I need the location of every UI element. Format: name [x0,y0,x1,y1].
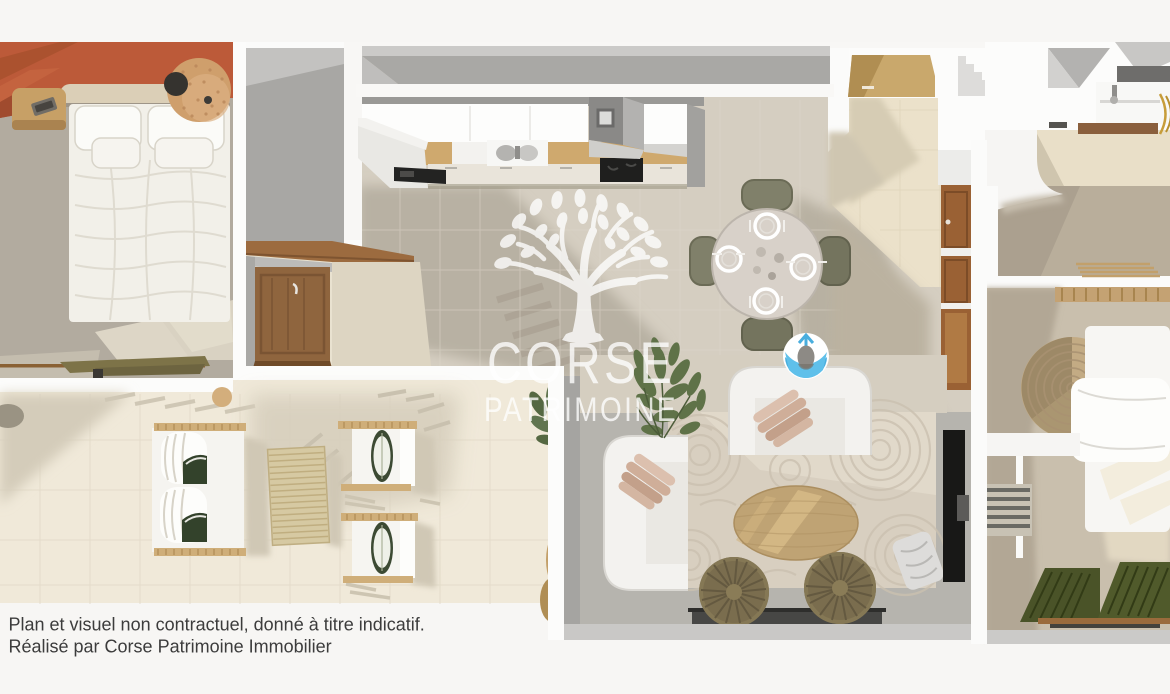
svg-text:Plan et visuel non contractuel: Plan et visuel non contractuel, donné à … [9,615,425,635]
svg-text:Réalisé par Corse Patrimoine I: Réalisé par Corse Patrimoine Immobilier [9,637,332,657]
svg-text:PATRIMOINE: PATRIMOINE [484,391,678,429]
svg-text:CORSE: CORSE [487,331,675,396]
